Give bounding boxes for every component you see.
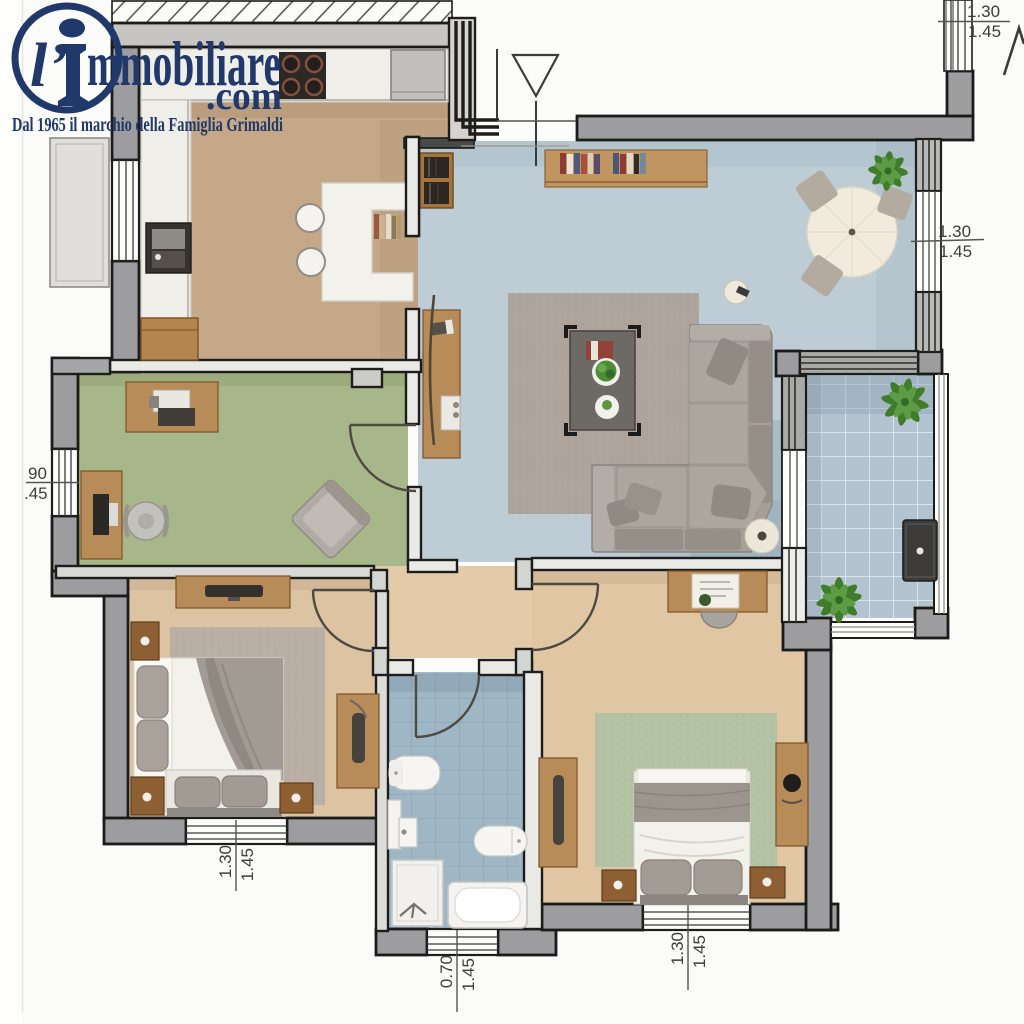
svg-text:l’: l’ — [30, 32, 68, 100]
svg-text:Dal 1965 il marchio della Fami: Dal 1965 il marchio della Famiglia Grima… — [12, 114, 283, 136]
svg-text:1.30: 1.30 — [216, 845, 235, 878]
svg-text:.com: .com — [206, 73, 282, 118]
svg-text:1.45: 1.45 — [459, 958, 478, 991]
svg-text:.45: .45 — [24, 484, 48, 503]
svg-text:90: 90 — [28, 464, 47, 483]
svg-text:1.45: 1.45 — [968, 22, 1001, 41]
svg-text:0.70: 0.70 — [437, 955, 456, 988]
svg-text:1.45: 1.45 — [238, 848, 257, 881]
svg-text:1.30: 1.30 — [967, 2, 1000, 21]
svg-text:1.45: 1.45 — [690, 935, 709, 968]
svg-text:1.30: 1.30 — [668, 932, 687, 965]
svg-text:1.45: 1.45 — [939, 242, 972, 261]
svg-text:1.30: 1.30 — [938, 222, 971, 241]
